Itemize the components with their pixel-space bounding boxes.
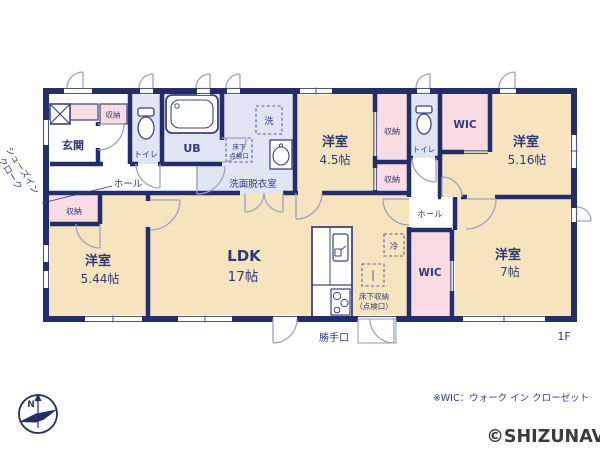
window-casement-top-1 bbox=[139, 74, 153, 95]
vanity-sink-icon bbox=[270, 140, 292, 169]
shoes-in-cloak-label: シューズイン クローク bbox=[0, 145, 42, 203]
toilet-icon-top bbox=[138, 108, 154, 139]
closet-genkan-label: 収納 bbox=[106, 110, 121, 120]
toilet-icon-right bbox=[416, 106, 432, 134]
watermark: ©SHIZUNAVI bbox=[486, 427, 600, 447]
compass-north-icon: N bbox=[19, 394, 57, 434]
underfloor-hatch-label-1: 床下 bbox=[233, 142, 247, 151]
toilet-right-label: トイレ bbox=[413, 145, 436, 154]
hall-top-label: ホール bbox=[114, 179, 143, 190]
room-516-name: 洋室 bbox=[513, 134, 539, 150]
backdoor-step-door bbox=[358, 315, 396, 343]
window-casement-right-room7 bbox=[570, 207, 591, 222]
kitchen-counter bbox=[312, 227, 352, 317]
genkan-x-box bbox=[50, 104, 70, 124]
hall-right-label: ホール bbox=[417, 210, 443, 220]
underfloor-hatch-label-2: 点検口 bbox=[229, 151, 249, 160]
room-544-size: 5.44帖 bbox=[81, 271, 120, 286]
window-left-544-b bbox=[42, 271, 50, 288]
ldk-name: LDK bbox=[227, 247, 262, 265]
room-45-name: 洋室 bbox=[322, 134, 348, 150]
underfloor-storage-label-1: 床下収納 bbox=[359, 291, 389, 301]
genkan-label: 玄関 bbox=[62, 138, 84, 152]
washroom-label: 洗面脱衣室 bbox=[229, 178, 277, 190]
window-casement-top-4 bbox=[416, 74, 430, 95]
compass-n-label: N bbox=[27, 400, 35, 410]
wic-bottom-label: WIC bbox=[418, 267, 441, 279]
fridge-label: 冷 bbox=[390, 241, 399, 252]
toilet-top-label: トイレ bbox=[134, 150, 158, 159]
room-45-size: 4.5帖 bbox=[319, 152, 350, 167]
ldk-size: 17帖 bbox=[228, 269, 259, 285]
bathtub-icon bbox=[166, 95, 218, 133]
closet-544-label: 収納 bbox=[66, 206, 82, 216]
washroom-floor-ext bbox=[196, 164, 222, 193]
room-544-name: 洋室 bbox=[85, 253, 111, 269]
backdoor-opening bbox=[273, 315, 297, 343]
wic-top-label: WIC bbox=[453, 119, 476, 131]
floor-plan-page: 玄関 シューズイン クローク ホール トイレ UB 洗面脱衣室 床下 点検口 洗… bbox=[0, 0, 600, 450]
wic-note: ※WIC：ウォーク イン クローゼット bbox=[433, 392, 589, 404]
window-bottom-ldk bbox=[178, 315, 232, 323]
window-bottom-room7 bbox=[463, 315, 545, 323]
window-left-genkan bbox=[42, 120, 50, 145]
room-7-name: 洋室 bbox=[495, 247, 521, 263]
genkan-cabinet bbox=[70, 104, 98, 120]
window-casement-top-5 bbox=[499, 72, 516, 95]
closet-45-upper-label: 収納 bbox=[384, 126, 400, 136]
window-casement-top-2 bbox=[196, 74, 210, 95]
room-516-size: 5.16帖 bbox=[508, 152, 547, 167]
backdoor-label: 勝手口 bbox=[319, 331, 349, 344]
floor-label: 1F bbox=[557, 330, 570, 343]
window-sliding-room45 bbox=[300, 87, 332, 95]
window-entrance bbox=[64, 72, 92, 95]
window-bottom-544 bbox=[85, 315, 142, 323]
window-left-544-a bbox=[42, 245, 50, 262]
room-7-size: 7帖 bbox=[500, 264, 520, 279]
ub-label: UB bbox=[183, 142, 200, 155]
washer-label: 洗 bbox=[264, 115, 273, 127]
floor-plan-drawing: 玄関 シューズイン クローク ホール トイレ UB 洗面脱衣室 床下 点検口 洗… bbox=[0, 0, 600, 450]
closet-45-lower-label: 収納 bbox=[384, 174, 400, 184]
underfloor-storage-label-2: （点検口） bbox=[355, 301, 393, 311]
window-right-516 bbox=[570, 135, 578, 168]
window-casement-top-3 bbox=[226, 74, 240, 95]
